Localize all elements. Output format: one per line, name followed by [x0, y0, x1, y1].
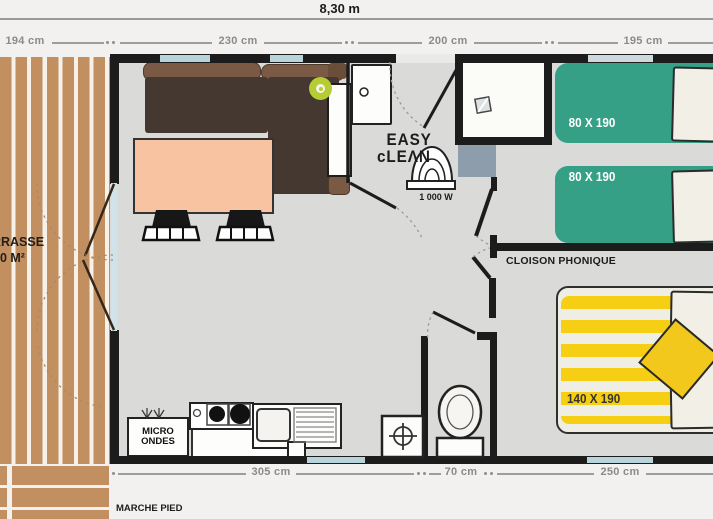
dim-dot — [112, 41, 115, 44]
dim-dot — [417, 472, 420, 475]
sofa-side-shelf — [327, 83, 352, 177]
double-bed-size: 140 X 190 — [567, 391, 620, 406]
dining-table — [133, 138, 274, 214]
round-cushion — [309, 77, 332, 100]
steps-label: MARCHE PIED — [116, 503, 206, 514]
terrace-label-line1: TERRASSE — [0, 235, 42, 251]
dim-bottom-3: 250 cm — [596, 466, 644, 478]
dim-line — [646, 473, 713, 475]
single-bed-top-size: 80 X 190 — [569, 115, 616, 130]
dim-dot — [545, 41, 548, 44]
pillow — [671, 169, 713, 243]
overall-length-line — [0, 18, 713, 20]
dim-top-1: 194 cm — [3, 35, 47, 47]
step-plank — [12, 510, 109, 519]
floorplan: 8,30 m 194 cm 230 cm 200 cm 195 cm TERRA… — [0, 0, 713, 519]
stove — [189, 402, 254, 430]
step-plank — [12, 488, 109, 507]
dim-line — [358, 42, 422, 44]
dim-line — [264, 42, 342, 44]
step-plank — [12, 466, 109, 485]
dim-dot — [484, 472, 487, 475]
shower-tray — [458, 143, 496, 177]
dim-dot — [423, 472, 426, 475]
dim-bottom-2: 70 cm — [442, 466, 480, 478]
dim-line — [497, 473, 594, 475]
round-cushion-center — [316, 84, 325, 93]
round-cushion-dot — [319, 87, 323, 91]
easy-clean-logo-line2: cLEΛN — [377, 147, 431, 167]
microwave: MICRO ONDES — [127, 417, 189, 457]
step-plank — [0, 488, 7, 507]
sofa-armrest — [328, 175, 350, 195]
overall-length-label: 8,30 m — [308, 1, 360, 16]
dim-top-2: 230 cm — [214, 35, 262, 47]
dim-dot — [112, 472, 115, 475]
terrace-label-line2: 30 M² — [0, 251, 42, 267]
dim-line — [296, 473, 414, 475]
single-bed-bottom-size: 80 X 190 — [569, 169, 616, 184]
dim-line — [558, 42, 618, 44]
heater-power-label: 1 000 W — [412, 192, 460, 202]
pillow — [671, 66, 713, 142]
dim-dot — [551, 41, 554, 44]
microwave-label-line2: ONDES — [141, 437, 175, 447]
dim-line — [52, 42, 104, 44]
dim-top-3: 200 cm — [424, 35, 472, 47]
shower-room — [463, 63, 544, 137]
dim-top-4: 195 cm — [620, 35, 666, 47]
sink-cabinet — [287, 441, 306, 460]
dim-bottom-1: 305 cm — [248, 466, 294, 478]
sofa-seat — [145, 77, 268, 133]
dim-dot — [106, 41, 109, 44]
dim-line — [474, 42, 542, 44]
fridge — [351, 64, 392, 125]
partition-label: CLOISON PHONIQUE — [506, 255, 626, 267]
dim-dot — [351, 41, 354, 44]
dim-line — [120, 42, 212, 44]
dim-line — [668, 42, 713, 44]
dim-dot — [345, 41, 348, 44]
step-plank — [0, 510, 7, 519]
dim-line — [118, 473, 246, 475]
dim-line — [429, 473, 441, 475]
dim-dot — [490, 472, 493, 475]
step-plank — [0, 466, 7, 485]
